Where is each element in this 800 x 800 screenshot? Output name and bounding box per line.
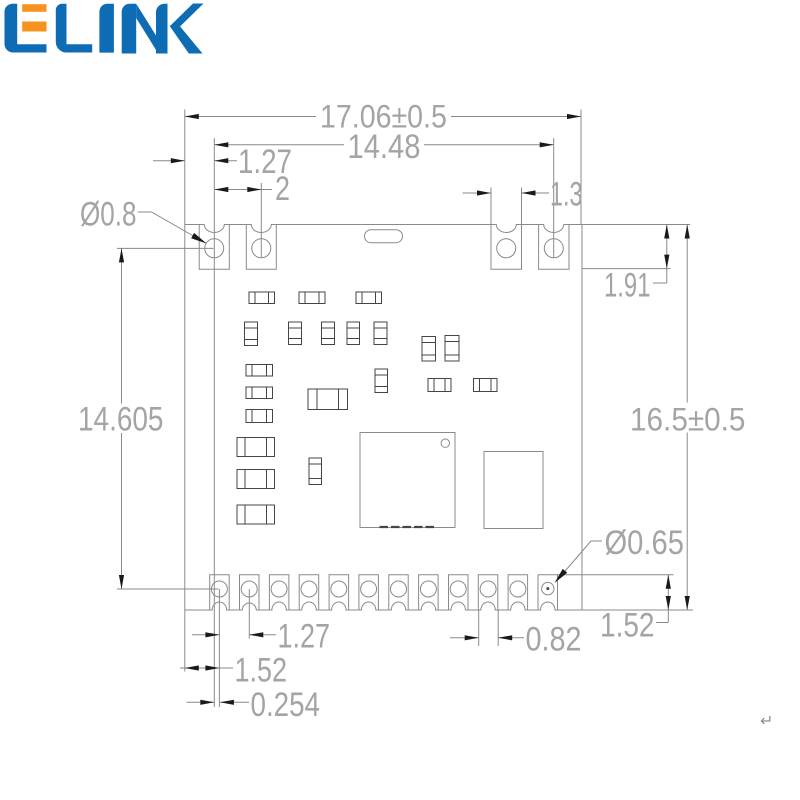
svg-text:2: 2 <box>275 170 290 208</box>
svg-text:Ø0.65: Ø0.65 <box>605 523 684 562</box>
svg-text:1.52: 1.52 <box>235 650 288 689</box>
svg-text:1.27: 1.27 <box>278 616 331 655</box>
svg-text:Ø0.8: Ø0.8 <box>80 196 137 233</box>
svg-text:1.91: 1.91 <box>604 266 651 304</box>
svg-text:14.48: 14.48 <box>348 127 421 166</box>
svg-text:16.5±0.5: 16.5±0.5 <box>630 401 745 437</box>
svg-text:1.52: 1.52 <box>600 606 655 644</box>
svg-text:0.254: 0.254 <box>251 685 320 723</box>
svg-text:14.605: 14.605 <box>78 400 163 438</box>
svg-text:1.3: 1.3 <box>550 176 582 213</box>
svg-text:↵: ↵ <box>760 713 773 730</box>
svg-text:0.82: 0.82 <box>526 619 582 658</box>
